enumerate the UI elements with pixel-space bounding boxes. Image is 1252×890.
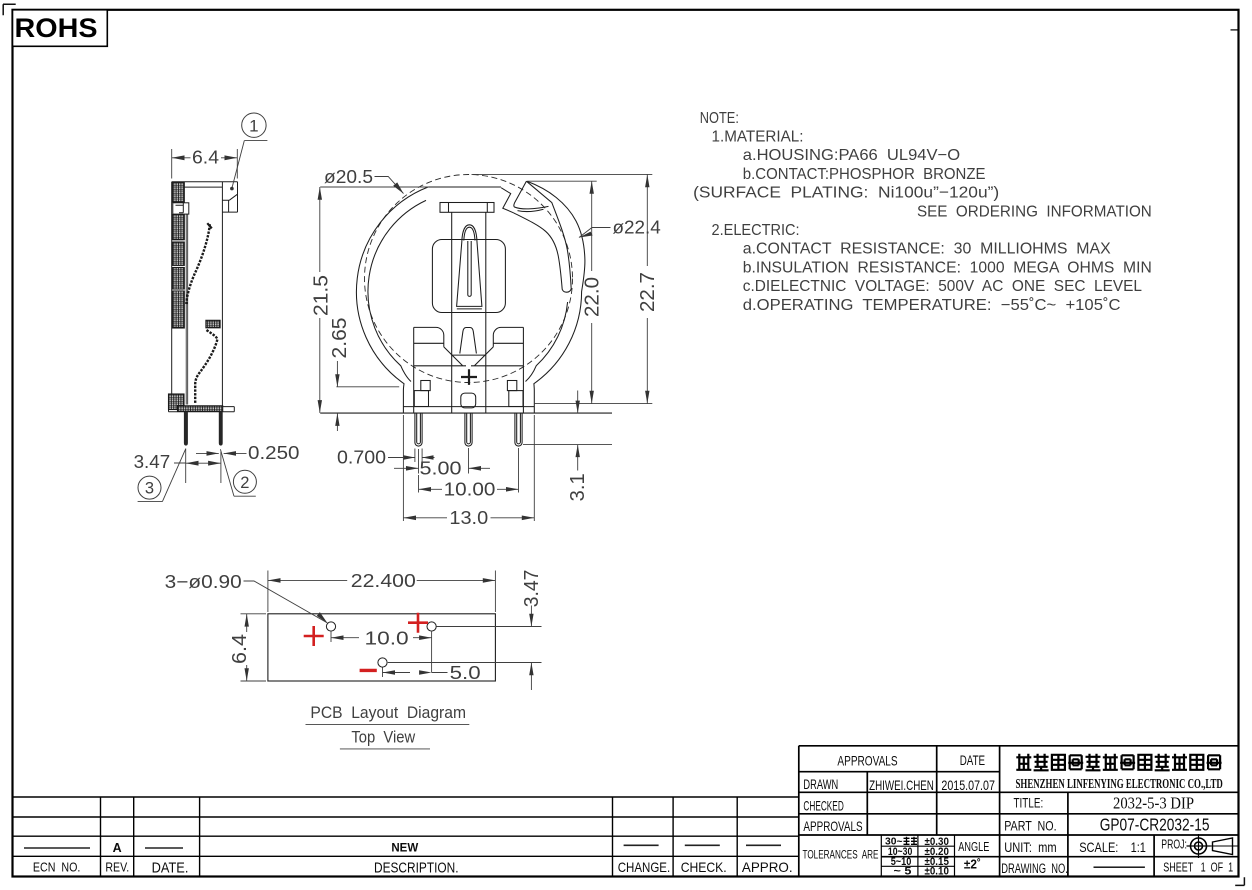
svg-text:DESCRIPTION.: DESCRIPTION.	[374, 860, 459, 877]
svg-text:d.OPERATING TEMPERATURE: −55: d.OPERATING TEMPERATURE: −55˚C~ +105˚C	[743, 297, 1121, 314]
svg-text:1.MATERIAL:: 1.MATERIAL:	[712, 129, 804, 146]
svg-text:a.CONTACT RESISTANCE: 30 MI: a.CONTACT RESISTANCE: 30 MILLIOHMS MAX	[743, 241, 1111, 258]
svg-text:ANGLE: ANGLE	[958, 839, 989, 854]
svg-text:TOLERANCES ARE: TOLERANCES ARE	[803, 847, 879, 861]
svg-text:GP07-CR2032-15: GP07-CR2032-15	[1100, 814, 1210, 834]
svg-text:CHANGE.: CHANGE.	[618, 859, 671, 875]
svg-text:±2˚: ±2˚	[964, 857, 981, 872]
svg-text:SCALE: 1:1: SCALE: 1:1	[1079, 839, 1146, 855]
svg-text:1: 1	[249, 117, 258, 136]
svg-text:TITLE:: TITLE:	[1014, 796, 1044, 811]
svg-text:2: 2	[240, 474, 249, 492]
svg-text:CHECKED: CHECKED	[803, 798, 843, 814]
svg-text:2032-5-3 DIP: 2032-5-3 DIP	[1113, 794, 1194, 813]
svg-text:a.HOUSING:PA66 UL94V−O: a.HOUSING:PA66 UL94V−O	[743, 147, 960, 164]
svg-text:21.5: 21.5	[310, 275, 333, 316]
svg-text:DRAWING NO.: DRAWING NO.	[1001, 861, 1068, 876]
svg-text:5.0: 5.0	[450, 662, 481, 683]
svg-text:SHENZHEN LINFENYING ELECTRONIC: SHENZHEN LINFENYING ELECTRONIC CO.,LTD	[1016, 776, 1223, 791]
svg-text:b.CONTACT:PHOSPHOR BRONZE: b.CONTACT:PHOSPHOR BRONZE	[743, 166, 986, 183]
svg-text:2.65: 2.65	[328, 318, 351, 359]
svg-text:APPROVALS: APPROVALS	[803, 818, 862, 834]
svg-text:NEW: NEW	[391, 843, 418, 855]
svg-text:DATE: DATE	[960, 752, 985, 768]
svg-text:APPRO.: APPRO.	[742, 859, 793, 875]
svg-text:13.0: 13.0	[449, 507, 488, 528]
svg-text:c.DIELECTNIC VOLTAGE: 500V: c.DIELECTNIC VOLTAGE: 500V AC ONE SEC LE…	[743, 278, 1142, 295]
svg-text:3.47: 3.47	[521, 570, 543, 608]
svg-text:PART NO.: PART NO.	[1004, 817, 1056, 833]
svg-text:CHECK.: CHECK.	[681, 859, 727, 875]
svg-text:NOTE:: NOTE:	[700, 110, 739, 127]
svg-text:2.ELECTRIC:: 2.ELECTRIC:	[712, 222, 800, 239]
svg-text:DRAWN: DRAWN	[803, 776, 838, 792]
svg-text:±0.10: ±0.10	[925, 866, 949, 878]
svg-text:Top View: Top View	[351, 728, 415, 747]
svg-text:6.4: 6.4	[229, 634, 251, 664]
svg-text:b.INSULATION RESISTANCE: 100: b.INSULATION RESISTANCE: 1000 MEGA OHMS …	[743, 259, 1152, 276]
svg-text:ZHIWEI.CHEN: ZHIWEI.CHEN	[869, 777, 934, 793]
svg-text:10.0: 10.0	[365, 628, 409, 649]
svg-text:ECN NO.: ECN NO.	[33, 860, 81, 875]
svg-text:5.00: 5.00	[420, 458, 462, 479]
svg-text:REV.: REV.	[105, 860, 129, 875]
svg-text:22.400: 22.400	[351, 570, 416, 591]
svg-text:APPROVALS: APPROVALS	[837, 753, 897, 769]
svg-text:22.0: 22.0	[581, 277, 604, 317]
svg-text:0.700: 0.700	[337, 447, 386, 468]
svg-text:22.7: 22.7	[636, 272, 659, 312]
svg-text:SHEET 1 OF 1: SHEET 1 OF 1	[1163, 859, 1233, 874]
svg-text:2015.07.07: 2015.07.07	[941, 777, 995, 793]
svg-text:(SURFACE PLATING: Ni100u”−12: (SURFACE PLATING: Ni100u”−120u”)	[693, 185, 999, 202]
svg-text:3.47: 3.47	[134, 452, 171, 472]
svg-text:3−ø0.90: 3−ø0.90	[165, 571, 242, 592]
svg-text:PROJ:: PROJ:	[1161, 837, 1187, 852]
svg-text:3.1: 3.1	[567, 473, 589, 501]
svg-text:ø20.5: ø20.5	[324, 167, 373, 187]
svg-text:A: A	[113, 841, 122, 855]
svg-text:0.250: 0.250	[248, 443, 300, 463]
svg-text:UNIT: mm: UNIT: mm	[1004, 839, 1056, 855]
svg-text:PCB Layout Diagram: PCB Layout Diagram	[310, 703, 466, 722]
svg-text:DATE.: DATE.	[152, 860, 189, 877]
svg-text:ø22.4: ø22.4	[613, 218, 661, 238]
svg-text:6.4: 6.4	[192, 147, 219, 167]
svg-text:3: 3	[145, 480, 154, 498]
svg-text:10.00: 10.00	[444, 479, 496, 500]
svg-text:~ 5: ~ 5	[894, 866, 912, 878]
svg-text:ROHS: ROHS	[15, 13, 98, 43]
svg-text:SEE ORDERING INFORMATION: SEE ORDERING INFORMATION	[917, 203, 1152, 220]
